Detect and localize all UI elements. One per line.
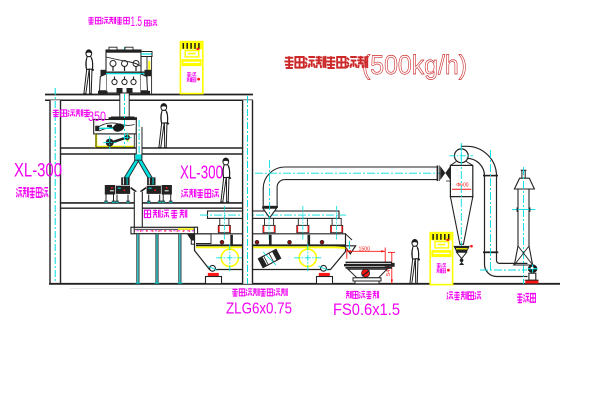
svg-text:XL-300: XL-300 bbox=[14, 161, 62, 182]
svg-text:1500: 1500 bbox=[359, 247, 371, 253]
svg-text:XL-300: XL-300 bbox=[180, 163, 223, 183]
svg-text:FS0.6x1.5: FS0.6x1.5 bbox=[333, 300, 400, 319]
svg-text:350: 350 bbox=[88, 108, 106, 124]
svg-text:ZLG6x0.75: ZLG6x0.75 bbox=[226, 301, 292, 318]
svg-text:Φ600: Φ600 bbox=[456, 182, 469, 188]
svg-text:(500kg/h): (500kg/h) bbox=[362, 50, 467, 80]
svg-text:1.5: 1.5 bbox=[131, 13, 143, 29]
